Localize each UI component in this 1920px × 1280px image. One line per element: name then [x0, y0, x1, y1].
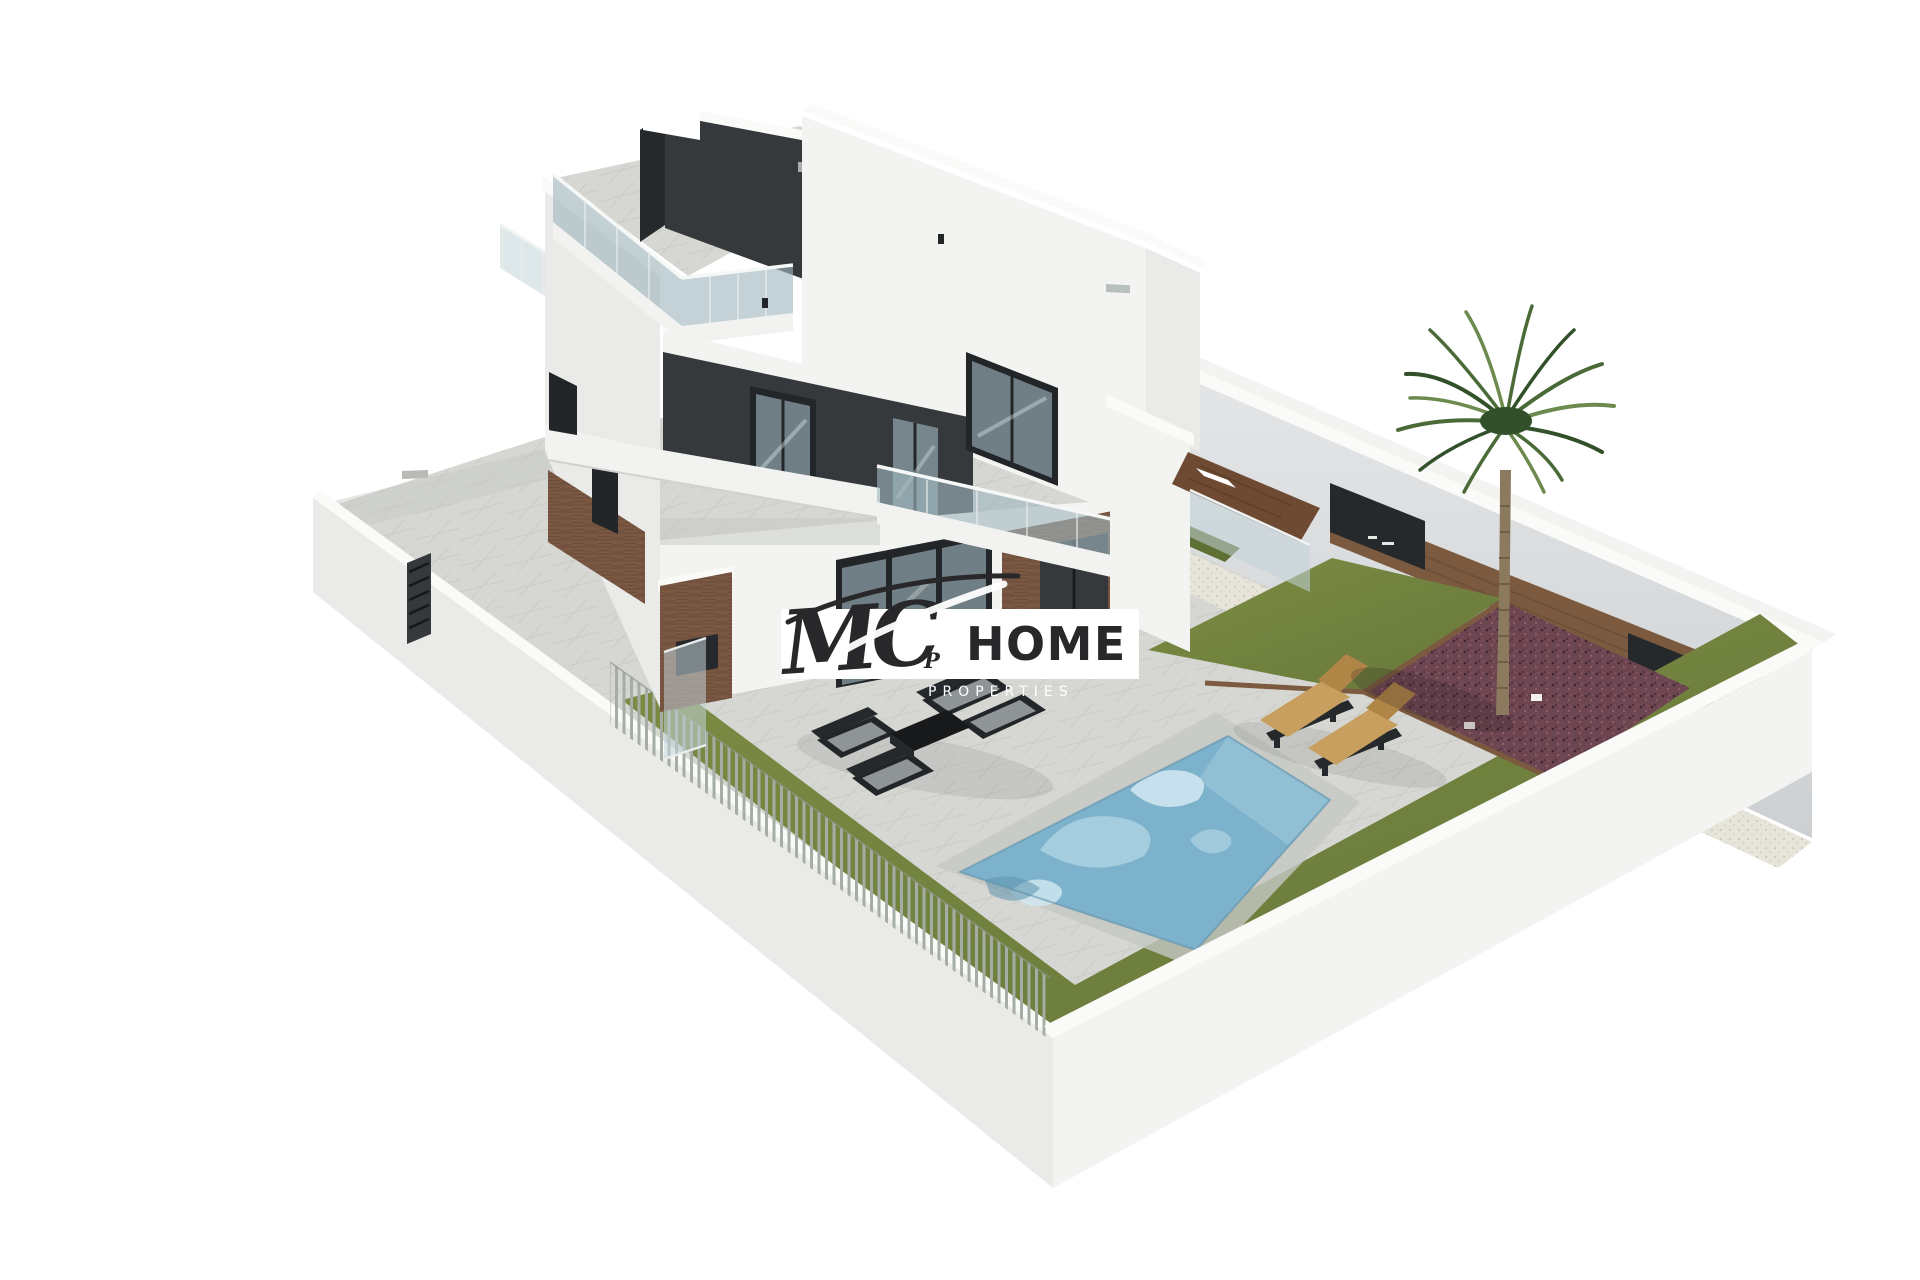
ground-light-2 — [1531, 694, 1542, 701]
lounger-1-leg-2 — [1330, 712, 1336, 722]
lounger-1-leg — [1274, 738, 1280, 748]
palm-crown — [1480, 407, 1532, 435]
under-slab-shadow — [660, 518, 880, 545]
panel-1-glyph-2 — [1382, 542, 1394, 545]
lounger-2-leg-2 — [1378, 740, 1384, 750]
villa-3d-render: MC P HOME PROPERTIES — [0, 0, 1920, 1280]
logo-word: HOME — [966, 617, 1127, 671]
render-canvas: MC P HOME PROPERTIES — [0, 0, 1920, 1280]
panel-1-glyph — [1368, 536, 1377, 539]
logo-monogram: MC — [775, 580, 944, 695]
facade-lamp-1 — [762, 298, 768, 308]
wall-vent — [402, 470, 428, 479]
glass-screen-panel — [664, 638, 706, 759]
roof-vent-icon — [1106, 284, 1130, 293]
facade-lamp-2 — [938, 234, 944, 244]
logo-subtitle: PROPERTIES — [928, 684, 1074, 700]
logo-monogram-tail: P — [923, 648, 941, 673]
garden-glass-screen — [664, 638, 706, 759]
lounger-2-leg — [1322, 766, 1328, 776]
